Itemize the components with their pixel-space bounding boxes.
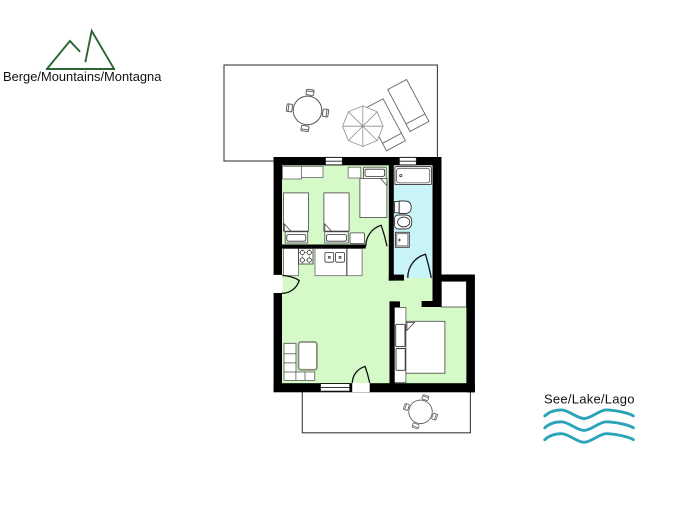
svg-text:See/Lake/Lago: See/Lake/Lago: [544, 392, 635, 407]
svg-text:Berge/Mountains/Montagna: Berge/Mountains/Montagna: [3, 69, 162, 84]
